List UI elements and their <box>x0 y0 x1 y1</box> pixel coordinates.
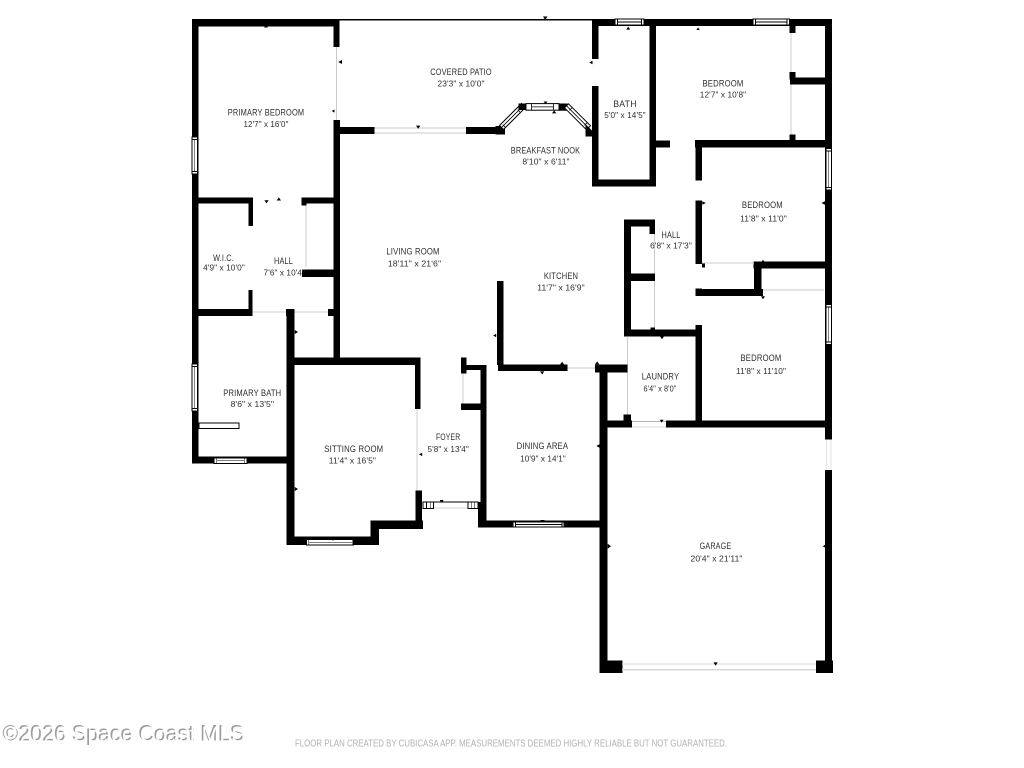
svg-text:W.I.C.: W.I.C. <box>213 253 234 263</box>
svg-text:23'3" x 10'0": 23'3" x 10'0" <box>438 79 485 89</box>
svg-text:8'6" x 13'5": 8'6" x 13'5" <box>231 399 274 409</box>
svg-text:©2026 Space Coast MLS: ©2026 Space Coast MLS <box>4 722 246 747</box>
svg-text:11'4" x 16'5": 11'4" x 16'5" <box>329 456 376 466</box>
svg-text:DINING AREA: DINING AREA <box>517 441 569 451</box>
svg-text:PRIMARY BEDROOM: PRIMARY BEDROOM <box>228 108 305 118</box>
svg-text:12'7" x 16'0": 12'7" x 16'0" <box>244 119 289 129</box>
svg-text:HALL: HALL <box>662 230 681 240</box>
svg-text:KITCHEN: KITCHEN <box>544 271 578 281</box>
svg-text:GARAGE: GARAGE <box>700 541 732 551</box>
svg-text:20'4" x 21'11": 20'4" x 21'11" <box>691 554 743 564</box>
svg-text:4'9" x 10'0": 4'9" x 10'0" <box>203 263 245 273</box>
svg-text:12'7" x 10'8": 12'7" x 10'8" <box>700 90 746 100</box>
svg-text:6'8" x 17'3": 6'8" x 17'3" <box>650 241 692 251</box>
svg-text:11'8" x 11'10": 11'8" x 11'10" <box>736 366 786 376</box>
svg-text:PRIMARY BATH: PRIMARY BATH <box>223 388 281 398</box>
svg-text:FLOOR PLAN CREATED BY CUBICASA: FLOOR PLAN CREATED BY CUBICASA APP. MEAS… <box>295 738 727 749</box>
svg-text:HALL: HALL <box>274 256 293 266</box>
svg-text:5'8" x 13'4": 5'8" x 13'4" <box>427 444 469 454</box>
svg-text:BEDROOM: BEDROOM <box>703 79 744 89</box>
svg-text:LAUNDRY: LAUNDRY <box>642 372 679 382</box>
svg-text:7'6" x 10'4": 7'6" x 10'4" <box>264 268 306 278</box>
svg-text:BEDROOM: BEDROOM <box>742 200 783 210</box>
svg-text:6'4" x 8'0": 6'4" x 8'0" <box>644 384 677 394</box>
svg-text:SITTING ROOM: SITTING ROOM <box>324 444 383 454</box>
svg-text:FOYER: FOYER <box>436 432 461 442</box>
svg-text:COVERED PATIO: COVERED PATIO <box>430 67 492 77</box>
svg-text:11'8" x 11'0": 11'8" x 11'0" <box>740 214 787 224</box>
svg-text:8'10" x 6'11": 8'10" x 6'11" <box>522 157 569 167</box>
svg-text:5'0" x 14'5": 5'0" x 14'5" <box>604 110 646 120</box>
svg-text:BEDROOM: BEDROOM <box>741 353 782 363</box>
svg-text:LIVING ROOM: LIVING ROOM <box>386 247 439 257</box>
svg-text:18'11" x 21'6": 18'11" x 21'6" <box>388 259 441 269</box>
svg-text:10'9" x 14'1": 10'9" x 14'1" <box>520 454 566 464</box>
svg-text:BATH: BATH <box>613 99 636 109</box>
svg-text:11'7" x 16'9": 11'7" x 16'9" <box>537 283 585 293</box>
svg-text:BREAKFAST NOOK: BREAKFAST NOOK <box>511 146 581 156</box>
